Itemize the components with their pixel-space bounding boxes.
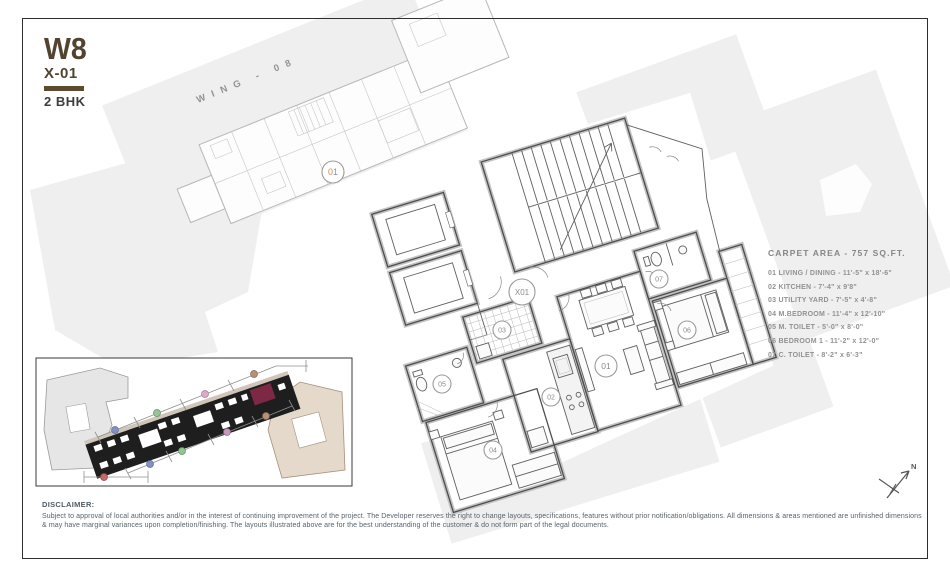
legend-item-03: 03 UTILITY YARD - 7'-5" x 4'-8": [768, 294, 928, 308]
legend-item-02: 02 KITCHEN - 7'-4" x 9'8": [768, 281, 928, 295]
unit-code: X-01: [44, 65, 91, 82]
legend-item-07: 07 C. TOILET - 8'-2" x 6'-3": [768, 349, 928, 363]
legend-item-06: 06 BEDROOM 1 - 11'-2" x 12'-0": [768, 335, 928, 349]
legend-item-01: 01 LIVING / DINING - 11'-5" x 18'-6": [768, 267, 928, 281]
title-divider-bar: [44, 86, 84, 91]
disclaimer: DISCLAIMER: Subject to approval of local…: [42, 500, 922, 531]
legend-item-04: 04 M.BEDROOM - 11'-4" x 12'-10": [768, 308, 928, 322]
disclaimer-line-2: & may have marginal variances upon compl…: [42, 521, 922, 530]
title-block: W8 X-01 2 BHK: [44, 34, 91, 109]
unit-type: 2 BHK: [44, 94, 91, 109]
carpet-area-header: CARPET AREA - 757 SQ.FT.: [768, 248, 928, 258]
floor-plan-page: WING - 08: [0, 0, 950, 578]
legend-item-05: 05 M. TOILET - 5'-0" x 8'-0": [768, 321, 928, 335]
disclaimer-line-1: Subject to approval of local authorities…: [42, 512, 922, 521]
disclaimer-heading: DISCLAIMER:: [42, 500, 922, 509]
block-code: W8: [44, 34, 87, 64]
room-legend: CARPET AREA - 757 SQ.FT. 01 LIVING / DIN…: [768, 248, 928, 362]
